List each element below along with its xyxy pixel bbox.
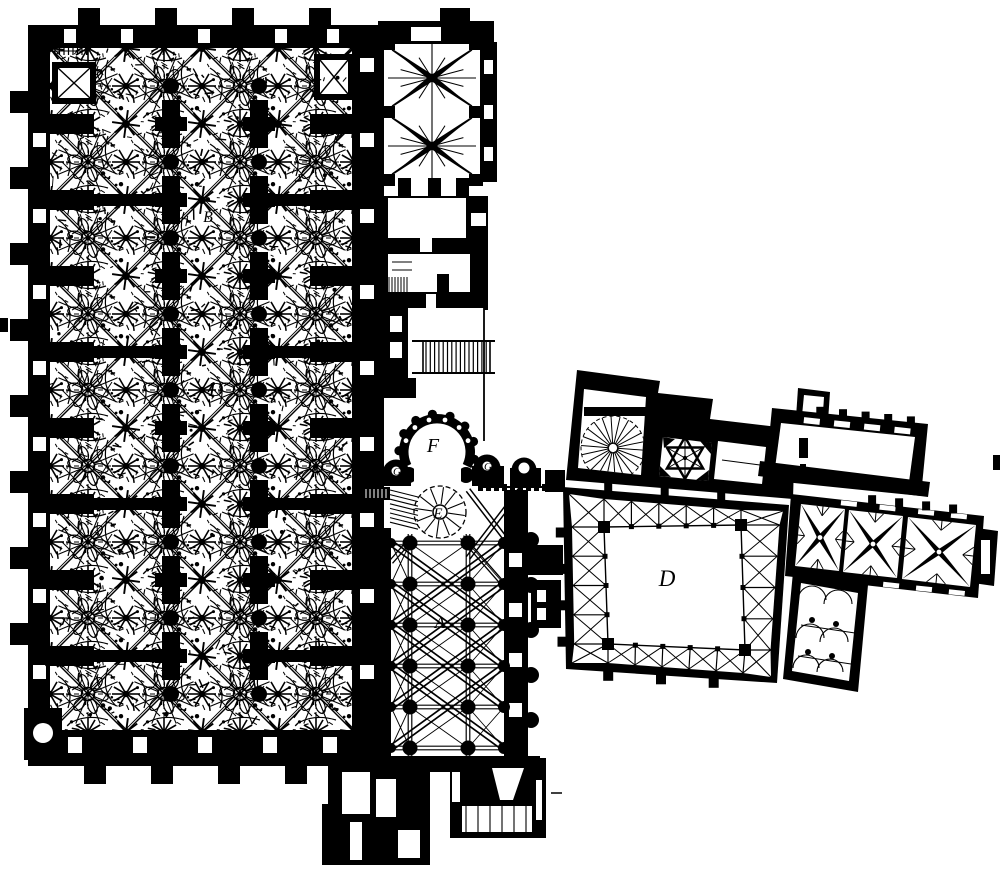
svg-text:D: D xyxy=(658,566,676,591)
svg-text:A: A xyxy=(434,613,446,632)
svg-text:G: G xyxy=(393,466,401,478)
svg-text:D: D xyxy=(208,379,224,401)
svg-text:E: E xyxy=(432,506,442,522)
svg-text:B: B xyxy=(203,209,213,226)
svg-text:G: G xyxy=(484,461,492,473)
svg-text:F: F xyxy=(426,435,440,457)
